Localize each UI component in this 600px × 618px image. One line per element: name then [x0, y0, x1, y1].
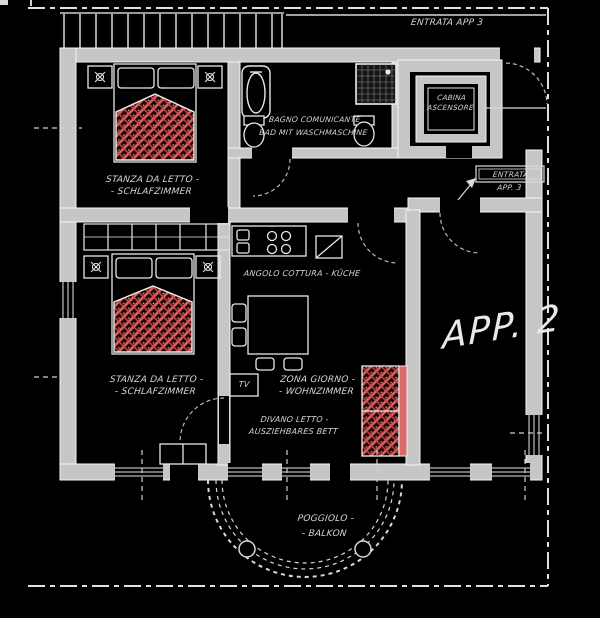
- balcony-label-line2: - BALKON: [260, 527, 388, 542]
- bedroom2-label: STANZA DA LETTO - - SCHLAFZIMMER: [75, 374, 238, 398]
- bedroom1-label-line2: - SCHLAFZIMMER: [71, 186, 232, 198]
- living-label-line1: ZONA GIORNO -: [280, 375, 356, 385]
- living-label: ZONA GIORNO - - WOHNZIMMER: [261, 374, 374, 398]
- bathroom-label-line1: BAGNO COMUNICANTE: [268, 115, 360, 124]
- bedroom1-label: STANZA DA LETTO - - SCHLAFZIMMER: [71, 174, 234, 198]
- balcony-label-line1: POGGIOLO -: [297, 514, 355, 524]
- lamp-icon: [95, 72, 105, 82]
- entrance3-label-line2: APP. 3: [475, 181, 544, 194]
- elevator-label: CABINA ASCENSORE: [413, 93, 489, 113]
- sofabed-label-line2: AUSZIEHBARES BETT: [227, 426, 360, 438]
- bathroom-label: BAGNO COMUNICANTE BAD MIT WASCHMASCHINE: [235, 113, 394, 139]
- terrace-railing: [60, 13, 284, 48]
- entrance3-label-line1: ENTRATA: [492, 170, 529, 179]
- elevator-label-line1: CABINA: [437, 93, 467, 102]
- bedroom2-label-line1: STANZA DA LETTO -: [109, 375, 204, 385]
- bedroom1-label-line1: STANZA DA LETTO -: [105, 175, 200, 185]
- floor-plan: ENTRATA APP 3 STANZA DA LETTO - - SCHLAF…: [0, 0, 600, 618]
- stove-icon: [268, 232, 291, 254]
- sink-icon: [237, 230, 249, 240]
- kitchen-label: ANGOLO COTTURA - KÜCHE: [225, 268, 378, 280]
- shower-icon: [356, 64, 396, 104]
- top-entrance-label: ENTRATA APP 3: [346, 17, 547, 29]
- entrance3-label: ENTRATA APP. 3: [475, 168, 546, 194]
- bathroom-label-line2: BAD MIT WASCHMASCHINE: [235, 126, 392, 139]
- elevator-label-line2: ASCENSORE: [413, 103, 488, 113]
- lamp-icon: [203, 262, 213, 272]
- tv-label: TV: [229, 375, 259, 395]
- bathtub-icon: [242, 66, 270, 118]
- corner-mark: [0, 0, 8, 5]
- sofabed-label-line1: DIVANO LETTO -: [260, 415, 329, 424]
- dining-table: [232, 296, 308, 370]
- sofabed-label: DIVANO LETTO - AUSZIEHBARES BETT: [227, 414, 362, 438]
- balcony-label: POGGIOLO - - BALKON: [260, 512, 389, 542]
- balcony-post-icon: [355, 541, 371, 557]
- kitchen-counter: [232, 226, 342, 258]
- lamp-icon: [205, 72, 215, 82]
- doormat: [160, 444, 206, 464]
- bed1-red-hatch: [116, 94, 194, 160]
- lamp-icon: [91, 262, 101, 272]
- wardrobe: [84, 224, 230, 250]
- sink-icon: [237, 243, 249, 253]
- living-label-line2: - WOHNZIMMER: [261, 386, 372, 398]
- bed2-red-hatch: [114, 286, 192, 352]
- bedroom2-label-line2: - SCHLAFZIMMER: [75, 386, 236, 398]
- balcony-post-icon: [239, 541, 255, 557]
